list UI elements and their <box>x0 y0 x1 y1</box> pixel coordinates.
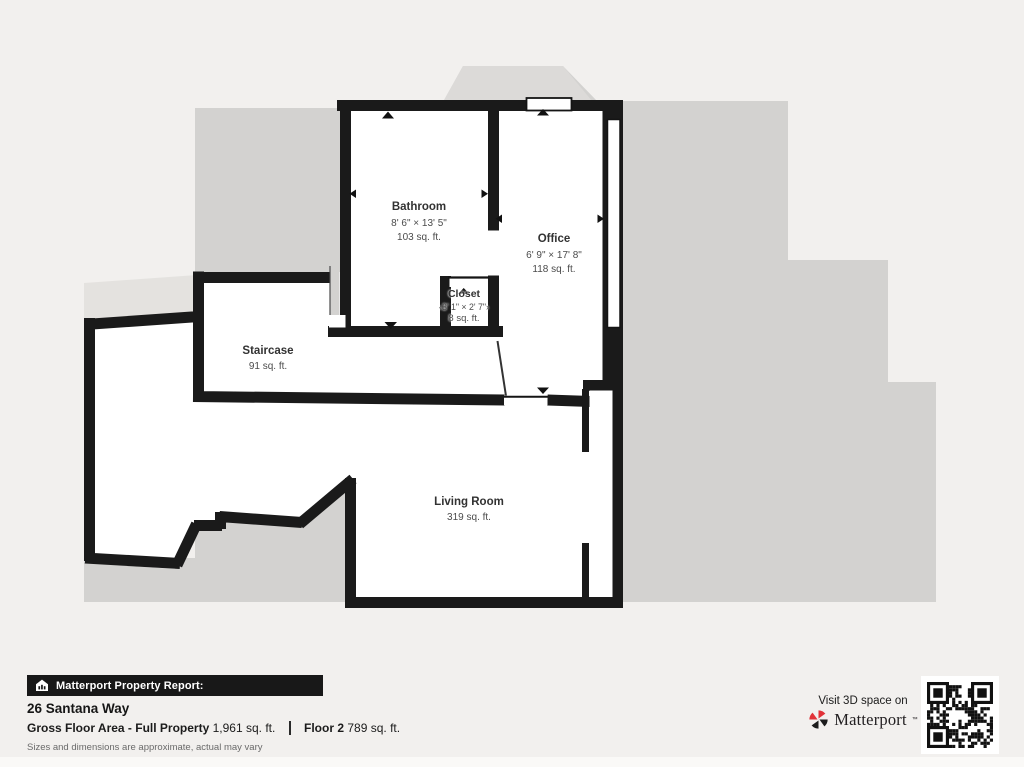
floor-plan <box>0 0 1024 665</box>
room-name: Bathroom <box>391 200 447 215</box>
room-label-living-room: Living Room 319 sq. ft. <box>434 495 504 524</box>
room-name: Office <box>526 232 582 247</box>
room-area: 91 sq. ft. <box>242 360 293 373</box>
disclaimer-text: Sizes and dimensions are approximate, ac… <box>27 742 263 753</box>
room-dims: 6' 9" × 17' 8" <box>526 249 582 262</box>
office-top-door <box>527 98 572 111</box>
room-area: 8 sq. ft. <box>439 313 489 326</box>
room-area: 118 sq. ft. <box>526 263 582 276</box>
qr-code-pattern <box>927 682 993 748</box>
report-bar-label: Matterport Property Report: <box>56 680 204 692</box>
trademark-symbol: ™ <box>912 717 918 723</box>
office-right-window <box>608 120 621 328</box>
room-name: Closet <box>439 288 489 302</box>
floor-stats: Gross Floor Area - Full Property 1,961 s… <box>27 721 400 735</box>
livingroom-right-window <box>581 452 590 543</box>
visit-3d-label: Visit 3D space on <box>803 695 923 707</box>
room-name: Living Room <box>434 495 504 510</box>
room-label-staircase: Staircase 91 sq. ft. <box>242 344 293 373</box>
room-label-bathroom: Bathroom 8' 6" × 13' 5" 103 sq. ft. <box>391 200 447 245</box>
bathroom-office-door <box>488 231 500 276</box>
right-cavity-strip <box>590 391 613 598</box>
stats-divider <box>289 721 291 735</box>
floor-label: Floor 2 <box>304 721 344 735</box>
report-header-bar: Matterport Property Report: <box>27 675 323 696</box>
qr-code <box>921 676 999 754</box>
matterport-link[interactable]: Matterport™ <box>803 709 923 730</box>
room-dims: 8' 6" × 13' 5" <box>391 217 447 230</box>
underlay-notch <box>330 266 340 315</box>
room-area: 103 sq. ft. <box>391 231 447 244</box>
house-icon <box>35 679 49 692</box>
room-dims: ‹3' 1" × 2' 7"› <box>439 302 489 314</box>
staircase-passage <box>329 315 346 328</box>
room-name: Staircase <box>242 344 293 359</box>
matterport-floorplan-page: Bathroom 8' 6" × 13' 5" 103 sq. ft. Offi… <box>0 0 1024 767</box>
matterport-logo-icon <box>808 709 829 730</box>
bottom-edge-strip <box>0 757 1024 767</box>
property-address: 26 Santana Way <box>27 701 129 716</box>
gfa-label: Gross Floor Area - Full Property <box>27 721 209 735</box>
matterport-wordmark: Matterport <box>834 710 907 730</box>
gfa-value: 1,961 sq. ft. <box>213 721 276 735</box>
room-area: 319 sq. ft. <box>434 511 504 524</box>
floor-value: 789 sq. ft. <box>347 721 400 735</box>
room-label-office: Office 6' 9" × 17' 8" 118 sq. ft. <box>526 232 582 277</box>
room-label-closet: Closet ‹3' 1" × 2' 7"› 8 sq. ft. <box>439 288 489 326</box>
